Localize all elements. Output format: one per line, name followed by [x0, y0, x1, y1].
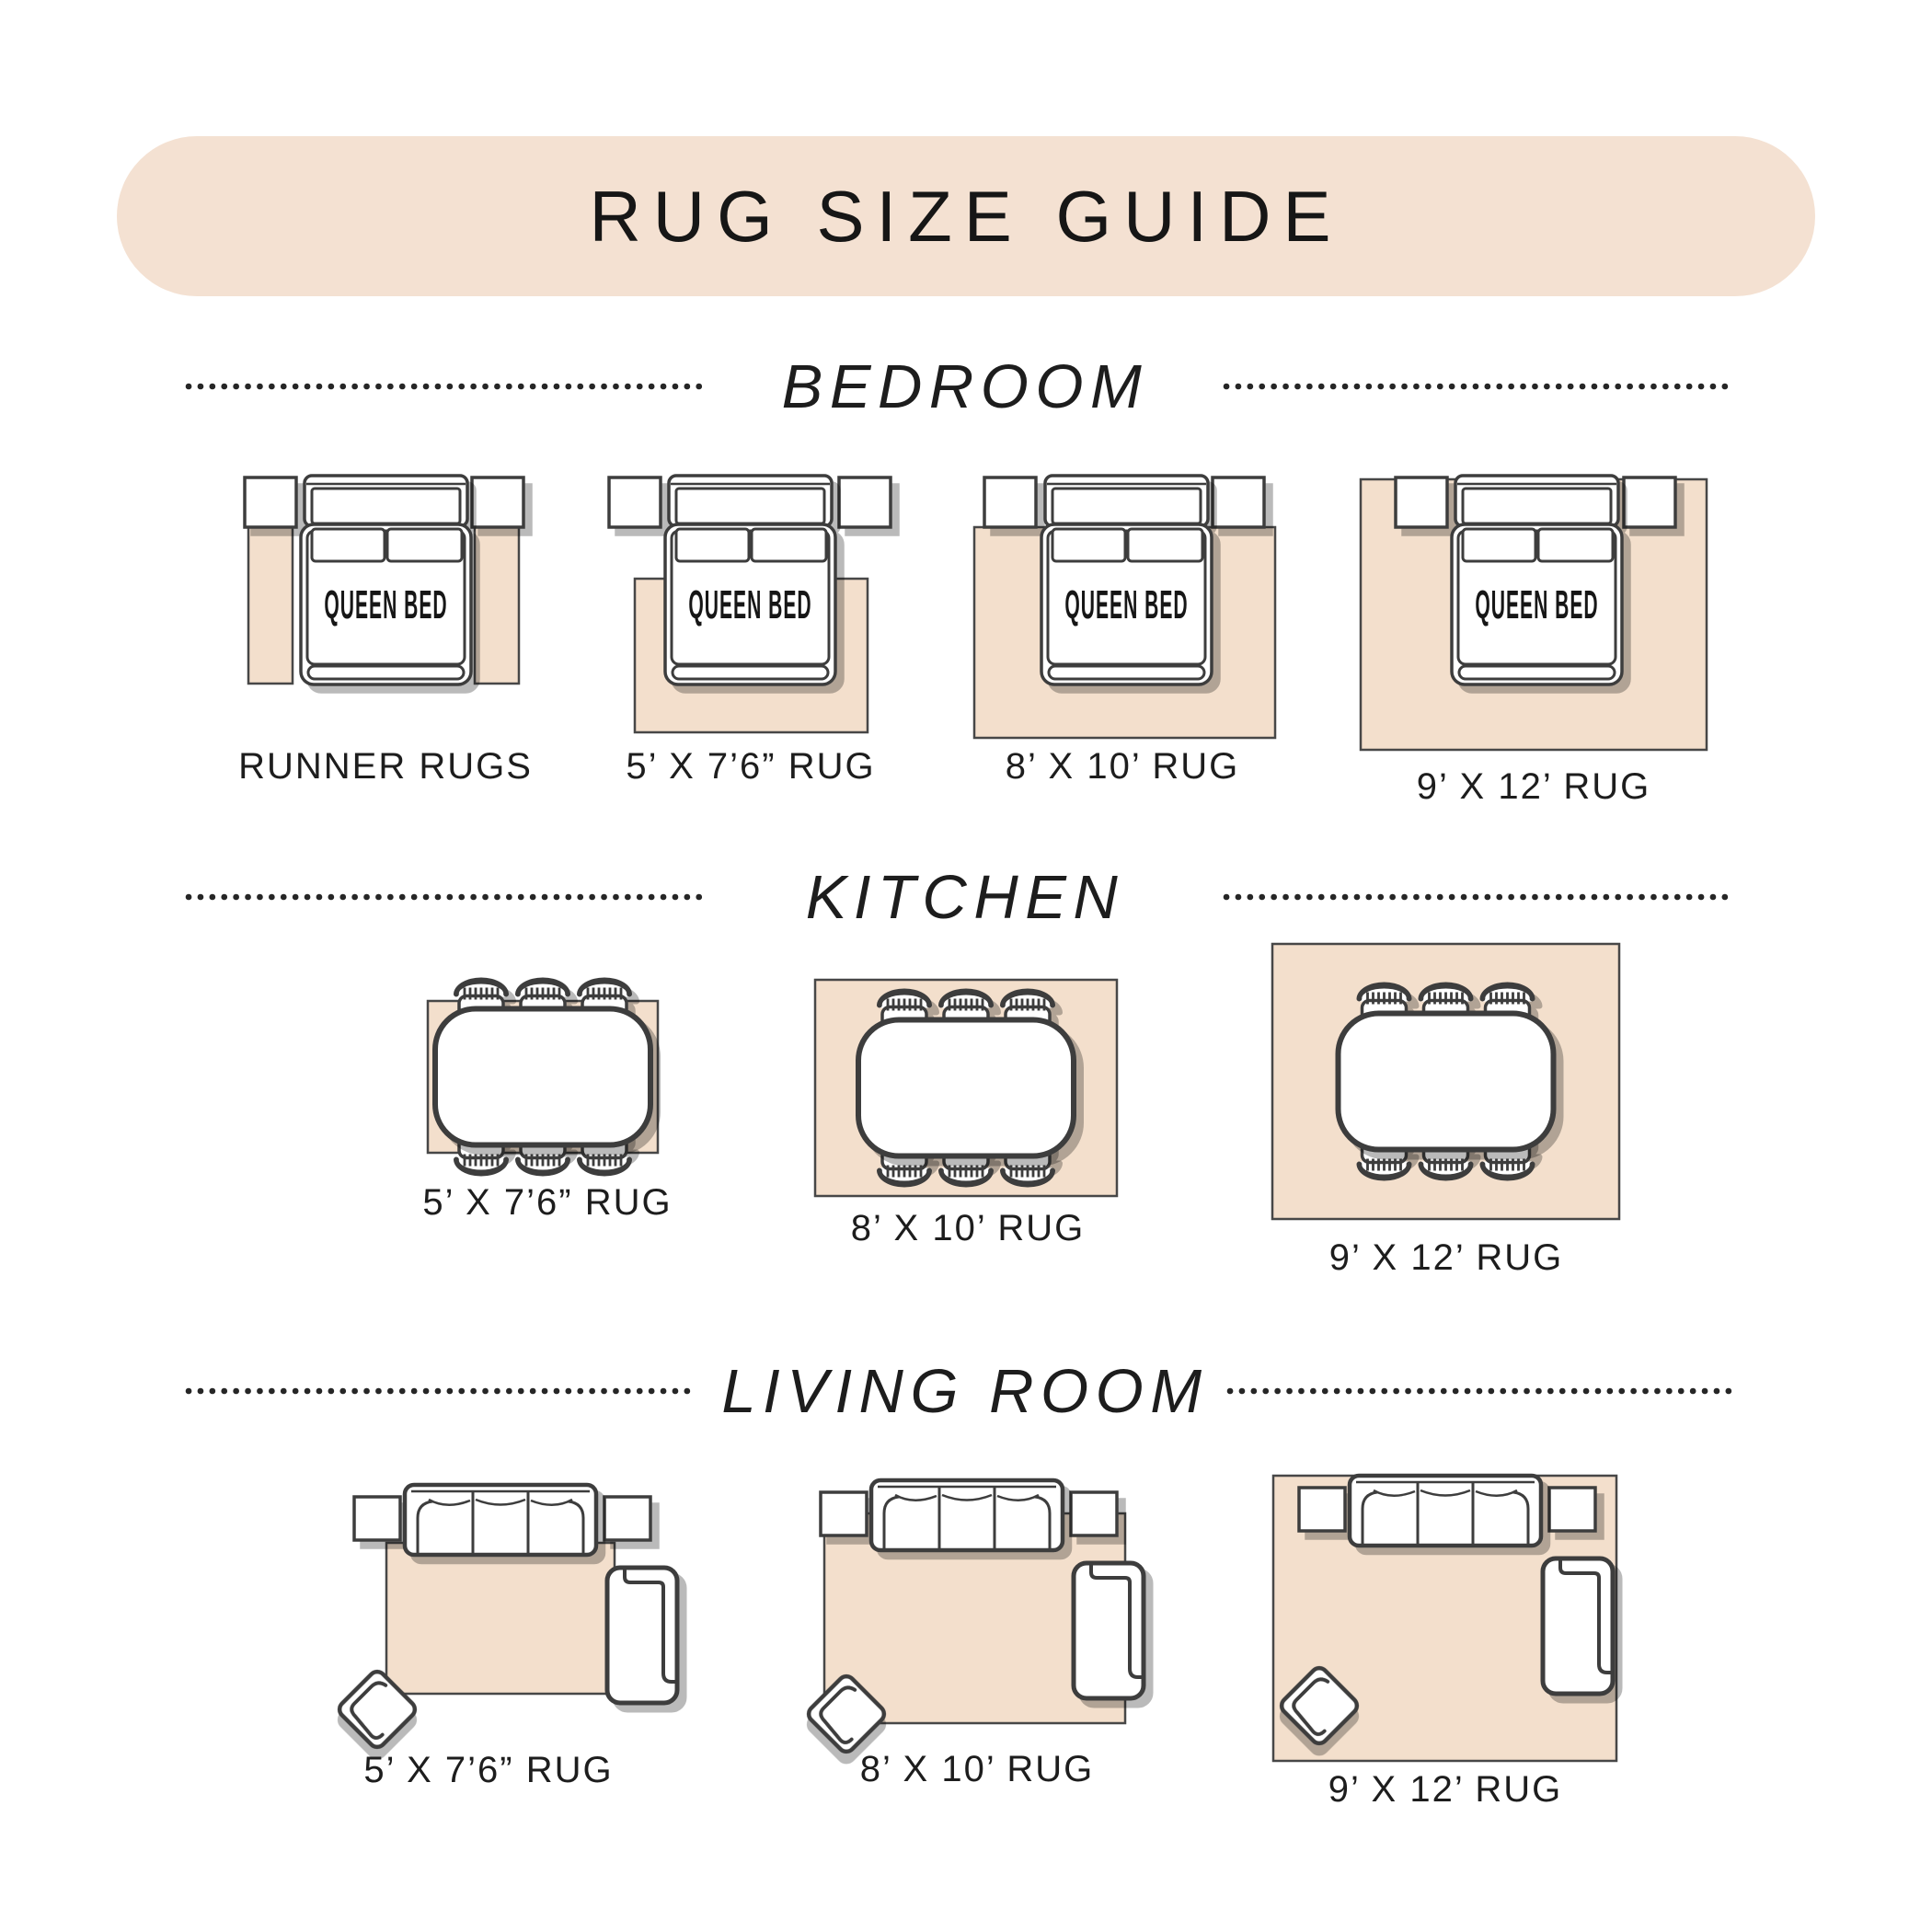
- svg-text:QUEEN BED: QUEEN BED: [1475, 583, 1598, 627]
- svg-text:BEDROOM: BEDROOM: [782, 352, 1149, 421]
- svg-text:QUEEN BED: QUEEN BED: [1064, 583, 1188, 627]
- svg-text:9’ X 12’ RUG: 9’ X 12’ RUG: [1417, 766, 1650, 807]
- svg-text:9’ X 12’ RUG: 9’ X 12’ RUG: [1329, 1237, 1563, 1278]
- svg-text:5’ X 7’6” RUG: 5’ X 7’6” RUG: [626, 746, 875, 787]
- svg-text:8’ X 10’ RUG: 8’ X 10’ RUG: [851, 1208, 1085, 1248]
- svg-text:RUNNER RUGS: RUNNER RUGS: [238, 746, 533, 787]
- svg-text:9’ X 12’ RUG: 9’ X 12’ RUG: [1328, 1769, 1562, 1810]
- svg-text:8’ X 10’ RUG: 8’ X 10’ RUG: [1006, 746, 1239, 787]
- svg-text:LIVING ROOM: LIVING ROOM: [721, 1357, 1208, 1426]
- svg-text:5’ X 7’6” RUG: 5’ X 7’6” RUG: [422, 1182, 672, 1223]
- svg-text:QUEEN BED: QUEEN BED: [688, 583, 811, 627]
- svg-text:RUG SIZE GUIDE: RUG SIZE GUIDE: [589, 176, 1342, 257]
- svg-text:QUEEN BED: QUEEN BED: [324, 583, 447, 627]
- svg-text:8’ X 10’ RUG: 8’ X 10’ RUG: [860, 1749, 1094, 1789]
- svg-text:KITCHEN: KITCHEN: [806, 863, 1125, 932]
- svg-text:5’ X 7’6” RUG: 5’ X 7’6” RUG: [363, 1750, 613, 1790]
